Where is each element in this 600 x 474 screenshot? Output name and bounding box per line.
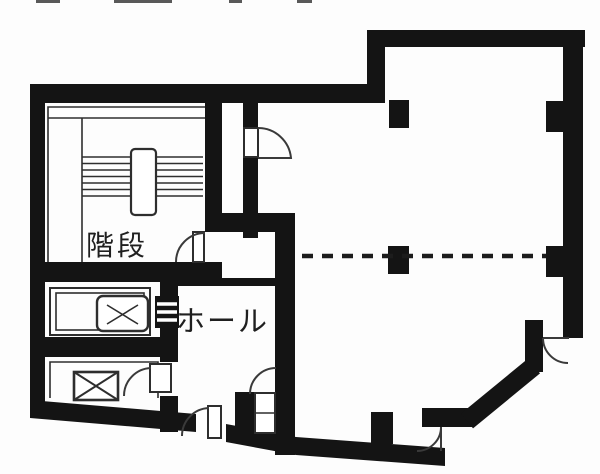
- door-entrance-leaf: [208, 406, 221, 438]
- pillar-right-upper: [546, 101, 563, 132]
- door-stair-leaf: [193, 232, 204, 262]
- door-upper-leaf: [244, 128, 258, 157]
- wall-ev-lobby-bottom: [30, 337, 175, 357]
- wall-duct-stub-upper: [243, 97, 258, 128]
- wall-stair-right: [205, 97, 222, 232]
- floor-plan-canvas: 階段 ホール: [0, 0, 600, 474]
- pillars: [371, 100, 563, 444]
- door-upper-room: [244, 128, 291, 158]
- wall-hall-right: [275, 213, 295, 455]
- outer-wall-top-right: [367, 30, 585, 47]
- outer-wall-right: [563, 30, 583, 338]
- wall-entry-stub: [235, 392, 255, 433]
- elevator: [50, 288, 179, 335]
- label-stairs: 階段: [86, 229, 148, 262]
- door-shaft-arc: [124, 368, 151, 396]
- floor-plan: 階段 ホール: [0, 0, 600, 474]
- door-stair: [176, 232, 205, 262]
- chamfer-wall-diagonal: [467, 366, 534, 421]
- outer-wall-top-left: [30, 84, 375, 103]
- top-edge-artifacts: [36, 0, 312, 3]
- door-terrace-upper-arc: [543, 338, 568, 363]
- label-hall: ホール: [176, 304, 269, 338]
- door-upper-arc: [258, 128, 291, 158]
- pillar-center: [388, 246, 409, 274]
- stair-newel: [131, 149, 156, 215]
- shaft-room: [50, 362, 171, 400]
- pillar-right-mid: [546, 246, 563, 277]
- elevator-cab: [97, 296, 148, 331]
- pillar-top: [389, 100, 409, 128]
- pillar-bottom: [371, 412, 393, 444]
- outer-wall-left: [30, 84, 45, 414]
- door-terrace-upper: [543, 338, 569, 363]
- door-shaft-leaf: [150, 364, 171, 392]
- wall-hall-left-lower: [160, 396, 178, 432]
- chamfer-stub-upper: [525, 320, 543, 372]
- door-main-arc: [250, 368, 276, 394]
